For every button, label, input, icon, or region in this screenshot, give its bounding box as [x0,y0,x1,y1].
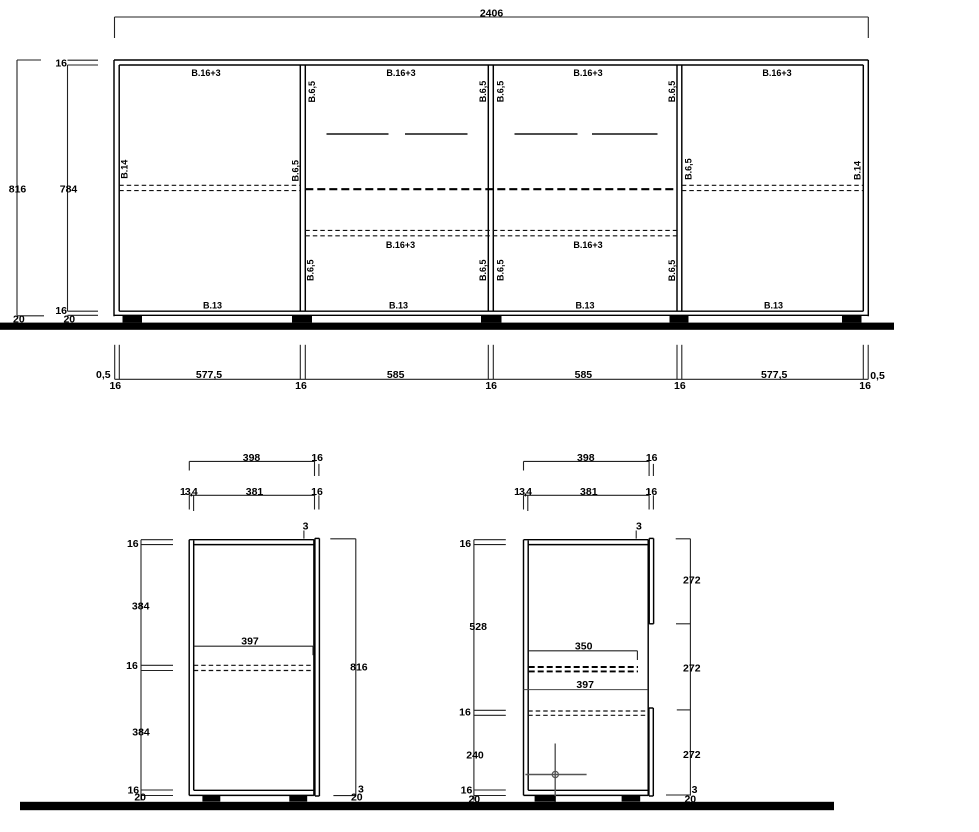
svg-text:B.16+3: B.16+3 [191,68,220,78]
svg-text:577,5: 577,5 [196,369,222,381]
svg-text:816: 816 [350,661,368,673]
svg-text:816: 816 [9,184,27,196]
svg-text:16: 16 [674,380,686,392]
svg-text:B.6,5: B.6,5 [305,259,315,281]
svg-text:384: 384 [132,727,150,739]
svg-text:272: 272 [683,749,701,761]
svg-text:B.13: B.13 [203,300,222,310]
svg-text:398: 398 [243,452,261,464]
svg-text:B.6,5: B.6,5 [478,81,488,103]
svg-text:16: 16 [459,538,471,550]
svg-text:B.16+3: B.16+3 [573,240,602,250]
svg-text:397: 397 [241,635,259,647]
svg-text:B.6,5: B.6,5 [496,81,506,103]
svg-text:B.14: B.14 [853,161,863,180]
svg-text:16: 16 [295,380,307,392]
svg-text:B.6,5: B.6,5 [667,81,677,103]
svg-text:20: 20 [134,791,146,803]
svg-text:B.6,5: B.6,5 [290,160,300,182]
svg-text:398: 398 [577,452,595,464]
svg-text:16: 16 [646,452,658,464]
svg-text:B.16+3: B.16+3 [762,68,791,78]
svg-text:B.6,5: B.6,5 [307,81,317,103]
svg-text:272: 272 [683,575,701,587]
svg-text:585: 585 [387,369,405,381]
svg-text:16: 16 [311,486,323,498]
svg-text:16: 16 [109,380,121,392]
svg-text:397: 397 [576,679,594,691]
svg-text:20: 20 [351,791,363,803]
svg-text:B.6,5: B.6,5 [684,158,694,180]
svg-text:16: 16 [311,452,323,464]
svg-text:577,5: 577,5 [761,369,787,381]
svg-text:240: 240 [466,749,484,761]
svg-text:272: 272 [683,663,701,675]
svg-text:585: 585 [575,369,593,381]
svg-text:B.13: B.13 [575,300,594,310]
svg-text:B.6,5: B.6,5 [478,259,488,281]
svg-text:350: 350 [575,641,593,653]
svg-text:B.6,5: B.6,5 [667,260,677,282]
svg-text:13,4: 13,4 [180,486,198,498]
svg-text:B.13: B.13 [764,300,783,310]
svg-text:784: 784 [60,184,78,196]
svg-text:B.13: B.13 [389,300,408,310]
svg-text:16: 16 [646,486,658,498]
svg-text:0,5: 0,5 [870,370,885,382]
svg-text:381: 381 [246,486,264,498]
svg-text:16: 16 [859,380,871,392]
svg-text:16: 16 [485,380,497,392]
svg-text:384: 384 [132,600,150,612]
svg-text:3: 3 [636,520,642,532]
svg-text:16: 16 [459,707,471,719]
svg-text:B.16+3: B.16+3 [386,240,415,250]
svg-text:B.6,5: B.6,5 [496,259,506,281]
svg-text:B.16+3: B.16+3 [573,68,602,78]
svg-text:16: 16 [55,57,67,69]
svg-text:B.14: B.14 [119,160,129,179]
svg-text:16: 16 [127,538,139,550]
svg-text:B.16+3: B.16+3 [386,68,415,78]
svg-text:16: 16 [126,660,138,672]
svg-text:528: 528 [469,621,487,633]
svg-text:13,4: 13,4 [514,486,532,498]
svg-text:2406: 2406 [480,7,504,19]
svg-text:381: 381 [580,486,598,498]
